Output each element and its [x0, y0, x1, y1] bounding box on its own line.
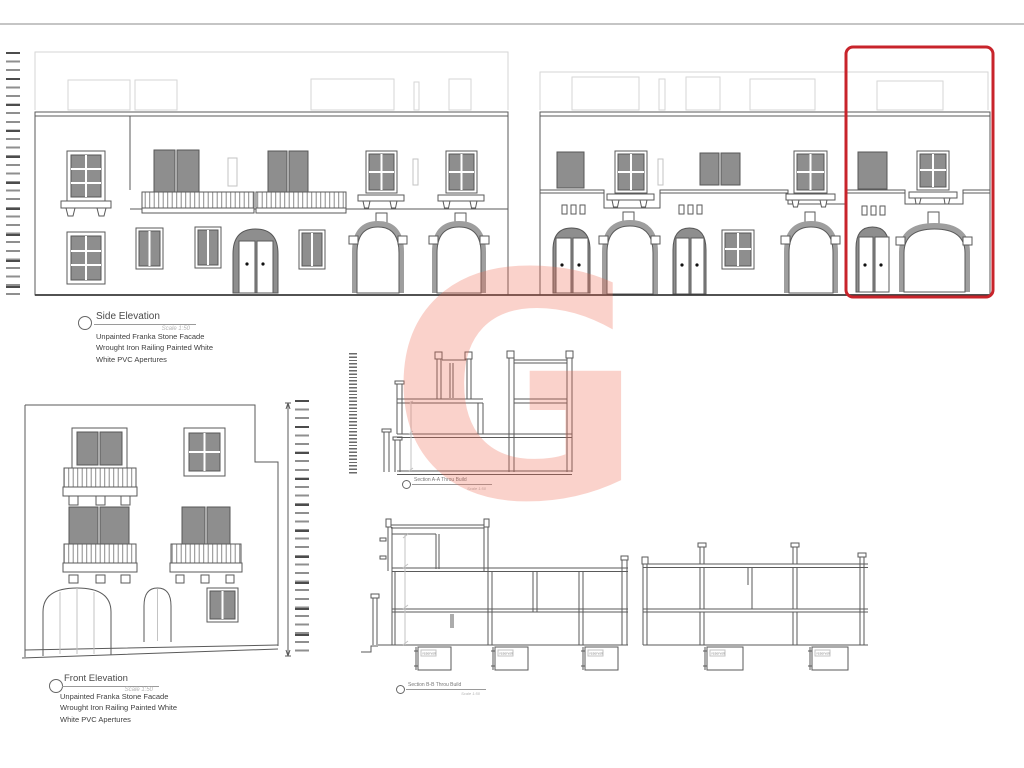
shuttered-window — [358, 151, 418, 208]
front-elevation-drawing — [22, 403, 291, 658]
roof-access-panel — [858, 152, 887, 189]
arch-opening — [781, 212, 840, 293]
arched-double-door — [553, 228, 590, 293]
side-elevation-drawing — [35, 47, 993, 297]
shuttered-window — [195, 227, 221, 268]
arched-garage-door — [43, 588, 111, 656]
svg-text:reservoir: reservoir — [423, 652, 437, 656]
section-b-drawing: reservoir reservoir reservoir reservoir … — [361, 519, 868, 670]
arch-opening — [349, 213, 407, 293]
shuttered-window — [136, 228, 163, 269]
vent-openings — [862, 206, 885, 215]
dimension-ticks-left — [6, 52, 20, 300]
arched-double-door — [856, 227, 889, 292]
shuttered-window — [61, 151, 111, 216]
svg-text:reservoir: reservoir — [500, 652, 514, 656]
shuttered-window — [722, 230, 754, 269]
reservoir-box: reservoir — [703, 647, 743, 670]
balcony — [63, 507, 137, 583]
arch-opening — [896, 212, 972, 292]
roof-access-panel — [700, 153, 740, 185]
shuttered-window — [207, 588, 238, 622]
shuttered-window — [184, 428, 225, 476]
dimension-line — [285, 403, 291, 656]
arched-door — [144, 588, 171, 642]
drawing-canvas: reservoir reservoir reservoir reservoir … — [0, 0, 1024, 768]
svg-text:reservoir: reservoir — [590, 652, 604, 656]
roof-outline-left — [35, 52, 508, 110]
arch-opening — [429, 213, 489, 293]
shuttered-window — [607, 151, 663, 207]
dimension-ticks-front — [295, 400, 309, 658]
svg-text:reservoir: reservoir — [817, 652, 831, 656]
svg-text:reservoir: reservoir — [712, 652, 726, 656]
reservoir-box: reservoir — [808, 647, 848, 670]
balcony — [170, 507, 242, 583]
balcony — [63, 428, 137, 505]
section-a-drawing — [382, 351, 573, 475]
roof-access-panel — [557, 152, 584, 188]
dimension-ticks-section-a — [349, 353, 357, 475]
arched-double-door — [673, 228, 706, 294]
shuttered-window — [438, 151, 484, 208]
shuttered-window — [299, 230, 325, 269]
shuttered-window — [909, 151, 957, 204]
arch-opening — [599, 212, 660, 294]
architectural-drawing-sheet: { "page": { "background": "#ffffff", "di… — [0, 0, 1024, 768]
arched-double-door — [233, 229, 278, 293]
reservoir-box: reservoir — [491, 647, 528, 670]
roof-outline-right — [540, 72, 988, 110]
reservoir-box: reservoir — [581, 647, 618, 670]
reservoir-box: reservoir — [414, 647, 451, 670]
shuttered-window — [67, 232, 105, 284]
shuttered-window — [786, 151, 835, 207]
